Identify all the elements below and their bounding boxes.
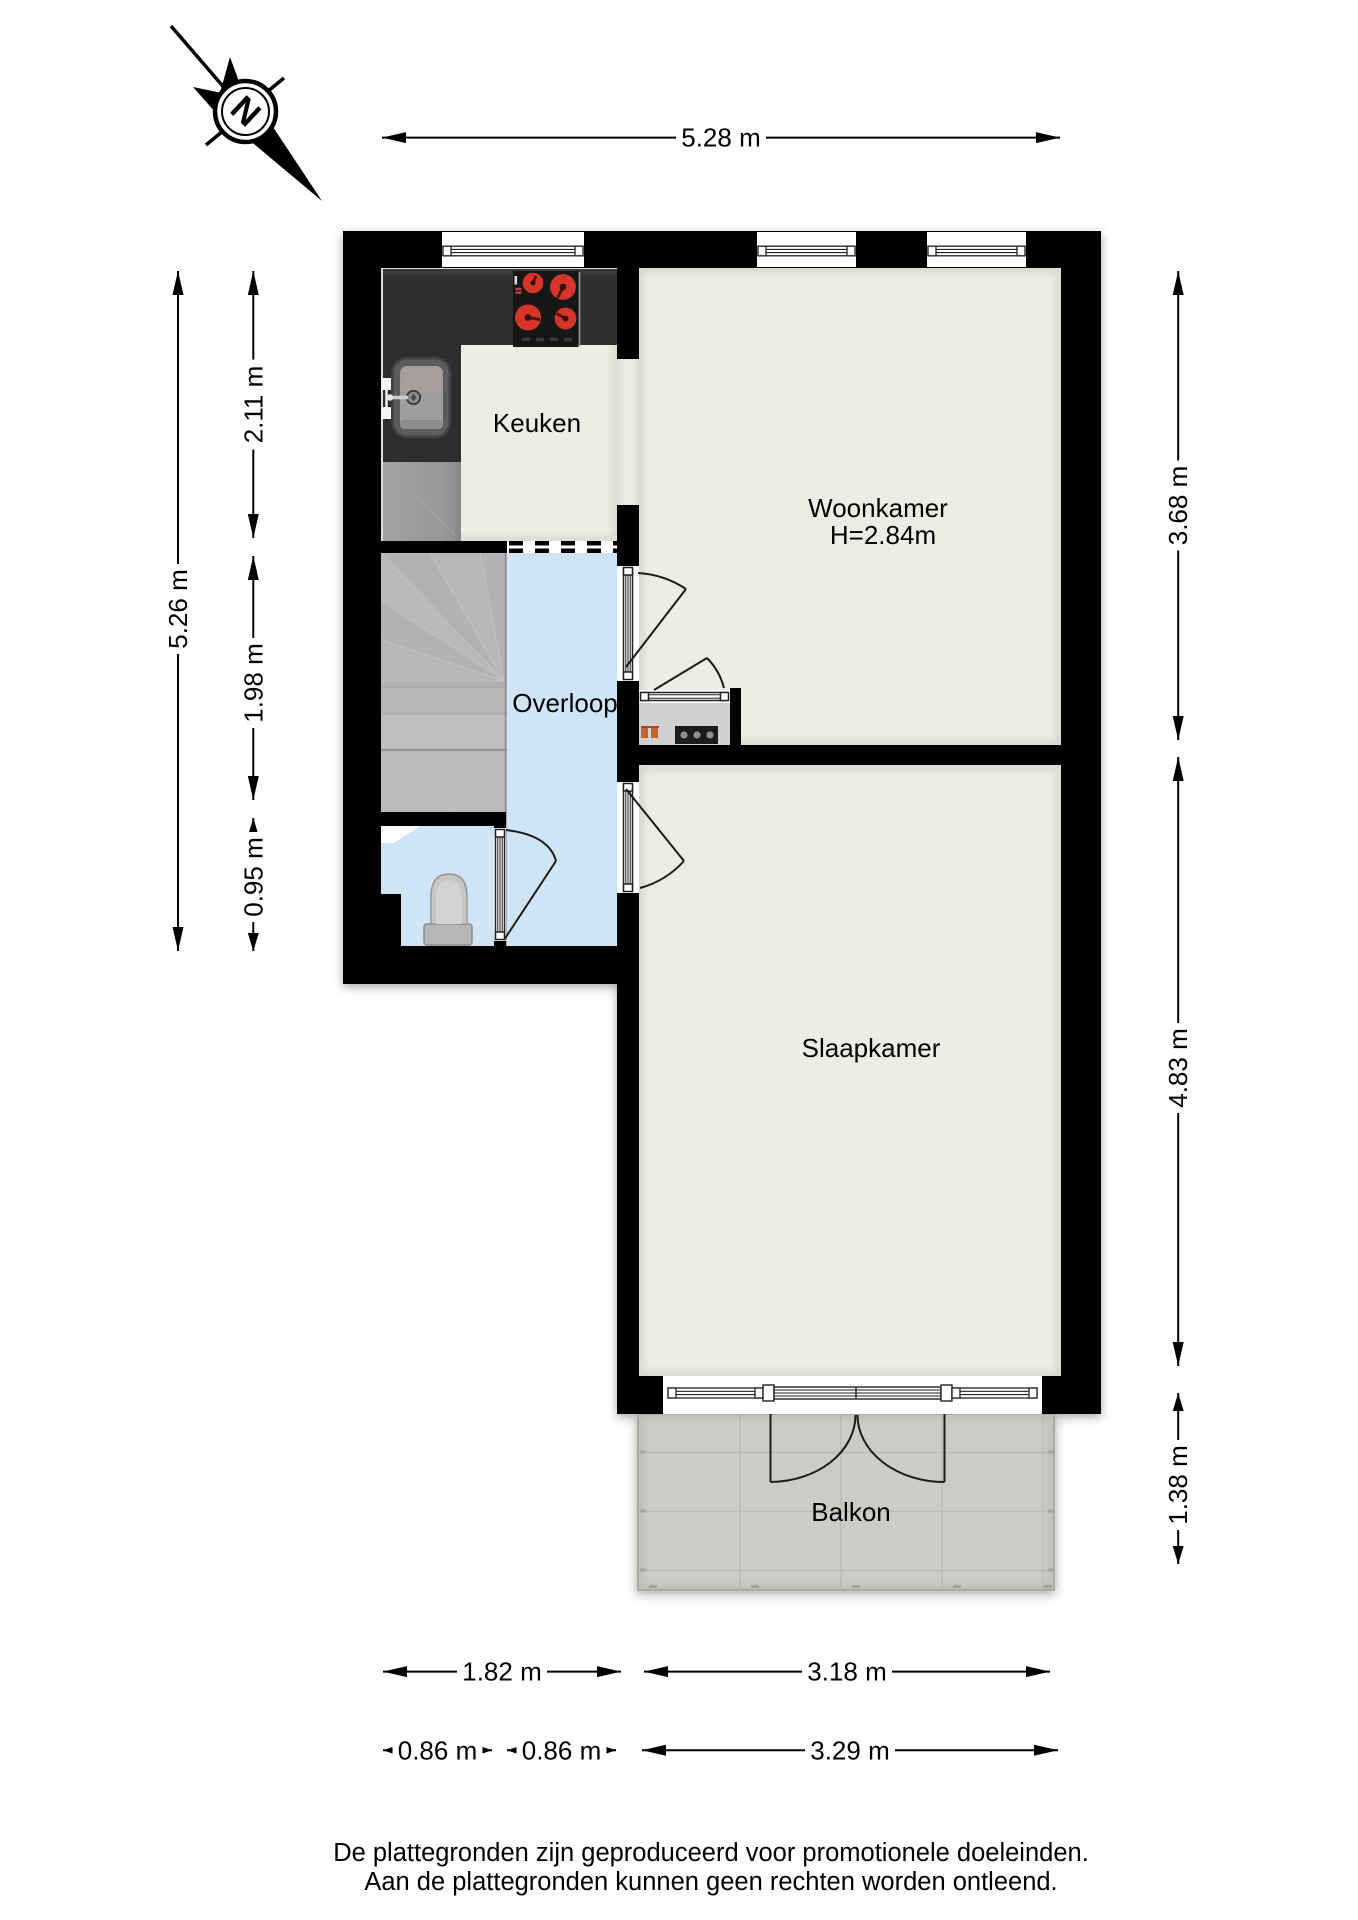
svg-text:Overloop: Overloop [512, 688, 618, 718]
svg-text:3.18 m: 3.18 m [807, 1657, 887, 1687]
svg-text:Keuken: Keuken [493, 408, 581, 438]
svg-text:H=2.84m: H=2.84m [830, 520, 936, 550]
svg-text:1.38 m: 1.38 m [1163, 1445, 1193, 1525]
svg-text:De plattegronden zijn geproduc: De plattegronden zijn geproduceerd voor … [333, 1839, 1089, 1867]
svg-text:0.86 m: 0.86 m [398, 1735, 478, 1765]
svg-text:5.26 m: 5.26 m [163, 569, 193, 649]
svg-text:Balkon: Balkon [811, 1497, 891, 1527]
svg-text:3.29 m: 3.29 m [810, 1735, 890, 1765]
svg-text:1.98 m: 1.98 m [238, 643, 268, 723]
svg-text:3.68 m: 3.68 m [1163, 466, 1193, 546]
svg-text:0.95 m: 0.95 m [238, 837, 268, 917]
svg-text:Aan de plattegronden kunnen ge: Aan de plattegronden kunnen geen rechten… [364, 1868, 1057, 1896]
svg-text:2.11 m: 2.11 m [238, 366, 268, 444]
svg-text:1.82 m: 1.82 m [462, 1657, 542, 1687]
svg-text:4.83 m: 4.83 m [1163, 1028, 1193, 1108]
svg-text:0.86 m: 0.86 m [522, 1735, 602, 1765]
svg-text:5.28 m: 5.28 m [681, 123, 761, 153]
svg-text:Slaapkamer: Slaapkamer [802, 1033, 941, 1063]
svg-text:Woonkamer: Woonkamer [808, 493, 948, 523]
